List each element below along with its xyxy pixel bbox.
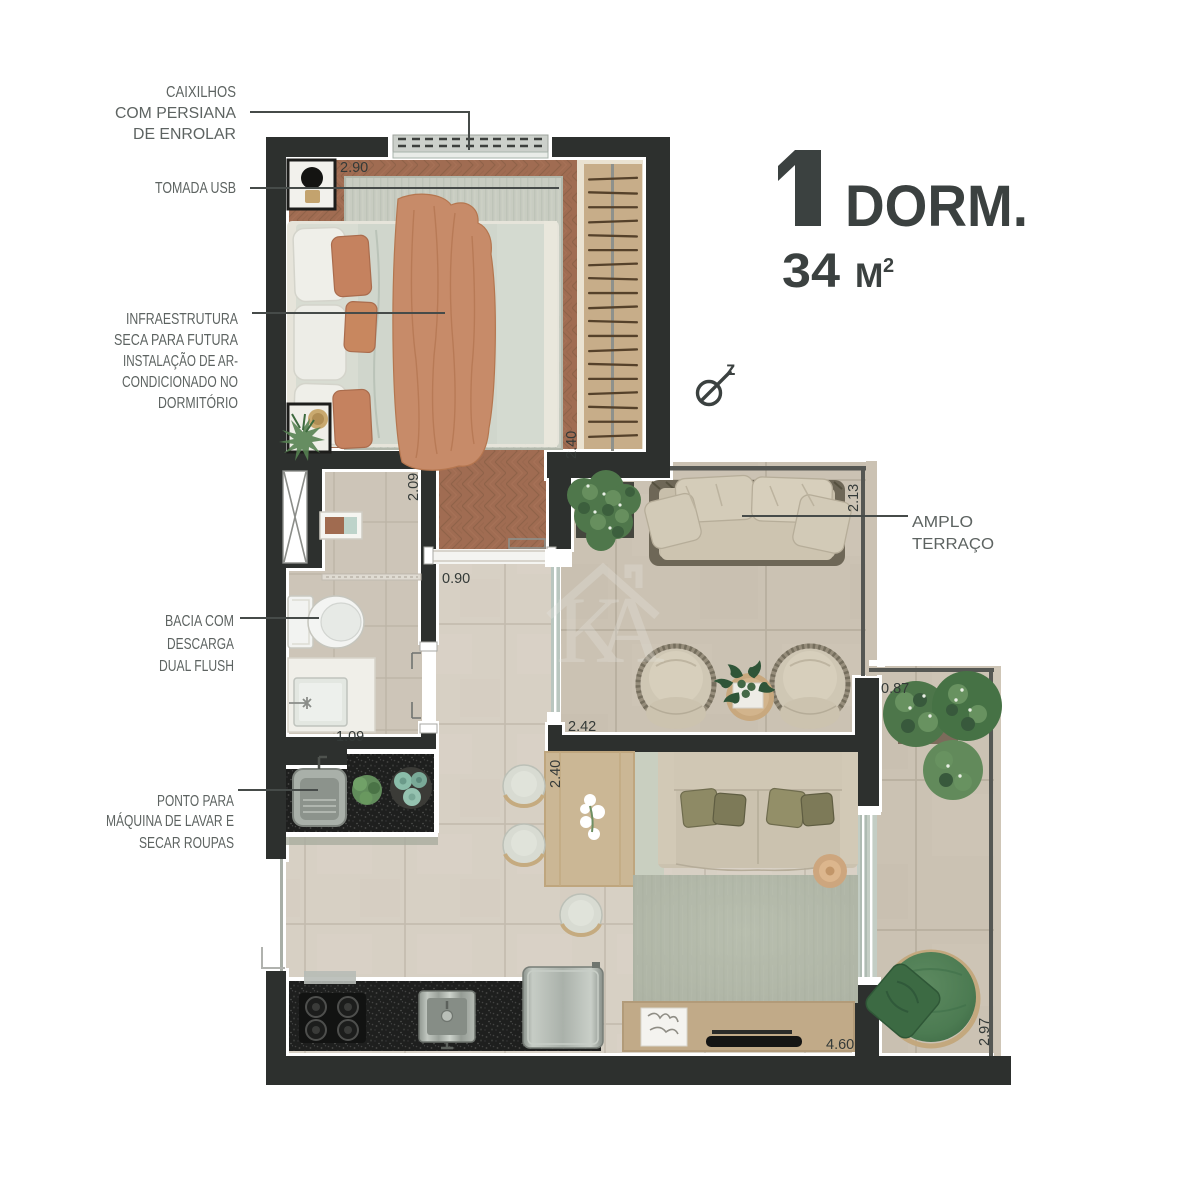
svg-text:2: 2 bbox=[883, 255, 894, 277]
svg-text:AMPLO: AMPLO bbox=[912, 514, 973, 531]
svg-text:DORMITÓRIO: DORMITÓRIO bbox=[158, 395, 238, 412]
svg-text:2.90: 2.90 bbox=[340, 160, 368, 176]
svg-text:INFRAESTRUTURA: INFRAESTRUTURA bbox=[126, 311, 239, 328]
svg-text:SECA PARA FUTURA: SECA PARA FUTURA bbox=[114, 332, 239, 349]
svg-text:BACIA COM: BACIA COM bbox=[165, 613, 234, 630]
svg-text:DE ENROLAR: DE ENROLAR bbox=[133, 126, 236, 143]
svg-text:M: M bbox=[855, 257, 883, 295]
svg-text:DESCARGA: DESCARGA bbox=[167, 636, 235, 653]
svg-text:0.90: 0.90 bbox=[442, 571, 470, 587]
svg-text:CAIXILHOS: CAIXILHOS bbox=[166, 84, 236, 101]
svg-text:INSTALAÇÃO DE AR-: INSTALAÇÃO DE AR- bbox=[123, 353, 238, 370]
svg-text:PONTO PARA: PONTO PARA bbox=[157, 793, 235, 810]
svg-text:4.60: 4.60 bbox=[826, 1037, 854, 1053]
svg-text:A: A bbox=[596, 577, 665, 683]
svg-text:SECAR ROUPAS: SECAR ROUPAS bbox=[139, 835, 234, 852]
svg-text:DUAL FLUSH: DUAL FLUSH bbox=[159, 658, 234, 675]
svg-text:2.40: 2.40 bbox=[548, 760, 564, 788]
svg-text:MÁQUINA DE LAVAR E: MÁQUINA DE LAVAR E bbox=[106, 813, 234, 830]
svg-text:2.42: 2.42 bbox=[568, 719, 596, 735]
svg-text:34: 34 bbox=[782, 245, 840, 298]
svg-text:CONDICIONADO NO: CONDICIONADO NO bbox=[122, 374, 238, 391]
svg-text:2.09: 2.09 bbox=[406, 473, 422, 501]
svg-text:1.09: 1.09 bbox=[336, 729, 364, 745]
svg-text:2.97: 2.97 bbox=[977, 1018, 993, 1046]
svg-text:DORM.: DORM. bbox=[845, 174, 1028, 239]
svg-text:z: z bbox=[726, 359, 736, 380]
svg-text:2.40: 2.40 bbox=[564, 431, 580, 459]
svg-text:TOMADA USB: TOMADA USB bbox=[155, 180, 236, 197]
svg-text:2.13: 2.13 bbox=[846, 484, 862, 512]
svg-text:0.87: 0.87 bbox=[881, 681, 909, 697]
svg-text:COM PERSIANA: COM PERSIANA bbox=[115, 105, 237, 122]
svg-text:TERRAÇO: TERRAÇO bbox=[912, 536, 994, 553]
